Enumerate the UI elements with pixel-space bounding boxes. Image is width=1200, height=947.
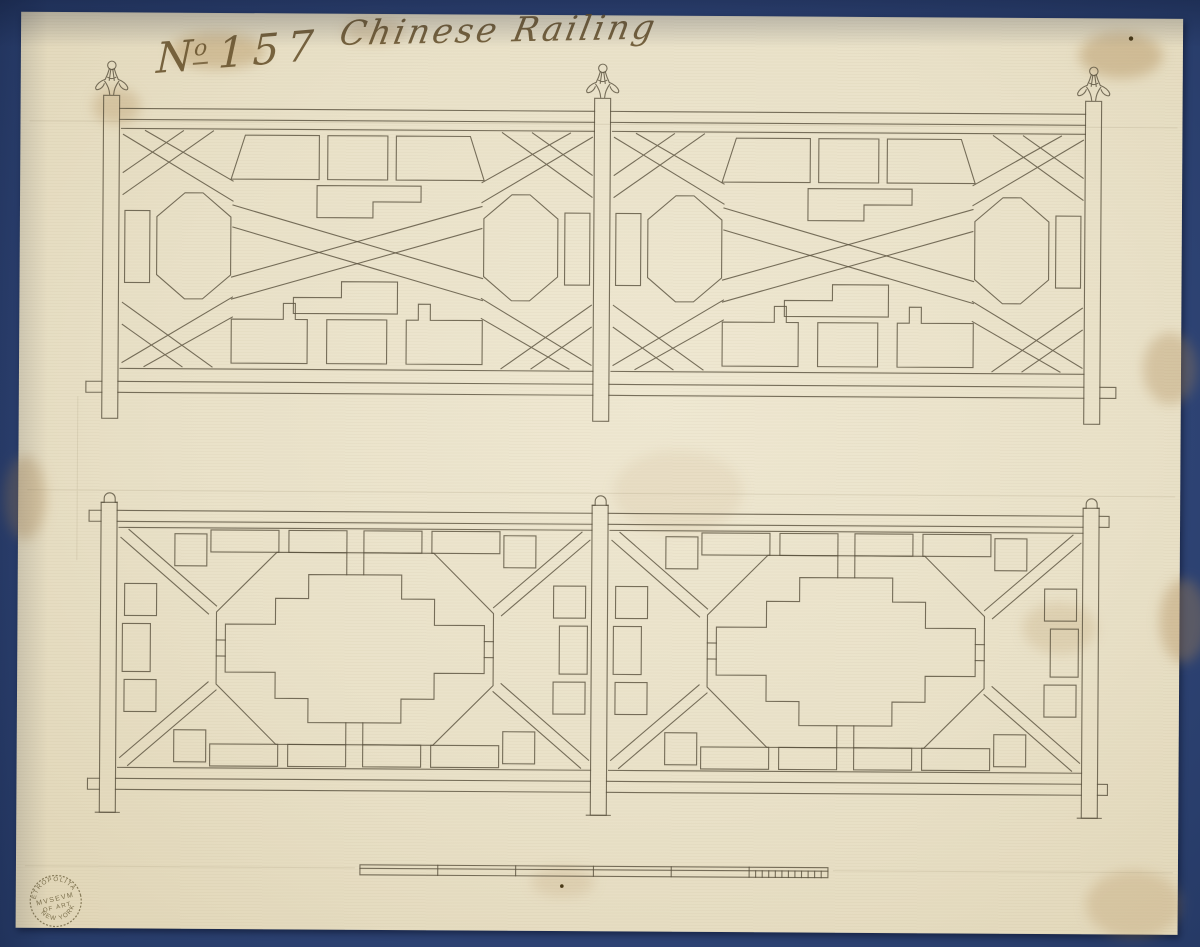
post-feet xyxy=(95,812,1101,818)
ink-speck xyxy=(1129,36,1133,40)
fret-panel xyxy=(120,128,594,371)
top-rail xyxy=(89,510,1109,527)
fret-panel xyxy=(118,527,592,770)
fret-panel xyxy=(609,530,1083,773)
ink-speck xyxy=(560,884,564,888)
fret-panel xyxy=(611,131,1085,374)
scale-bar xyxy=(360,865,828,878)
number-prefix: N xyxy=(156,31,194,83)
bottom-railing-elevation xyxy=(87,493,1109,819)
artwork-scan: METROPOLITAN MVSEVM OF ART NEW YORK No15… xyxy=(0,0,1200,947)
number-superscript: o xyxy=(193,36,209,65)
bottom-rail xyxy=(87,778,1107,795)
railing-post xyxy=(102,95,120,418)
railing-post xyxy=(590,496,608,816)
guide-lines xyxy=(25,121,1178,873)
paper-wrap: METROPOLITAN MVSEVM OF ART NEW YORK No15… xyxy=(0,0,1200,947)
railing-post xyxy=(1081,499,1099,819)
railing-post xyxy=(1084,101,1102,424)
railing-post xyxy=(593,98,611,421)
top-railing-elevation xyxy=(86,61,1118,424)
bottom-rail xyxy=(86,381,1116,398)
met-stamp: METROPOLITAN MVSEVM OF ART NEW YORK xyxy=(25,870,87,932)
railing-post xyxy=(99,493,117,813)
number-value: 157 xyxy=(217,20,322,78)
railing-drawing: METROPOLITAN MVSEVM OF ART NEW YORK xyxy=(0,0,1200,947)
inscription-title: Chinese Railing xyxy=(336,7,661,54)
